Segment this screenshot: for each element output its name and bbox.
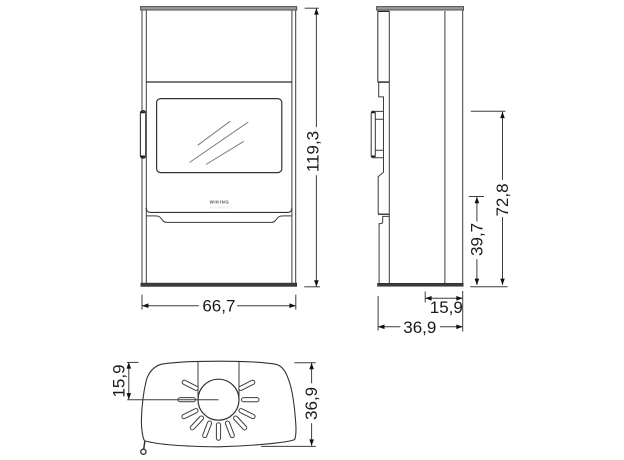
svg-text:15,9: 15,9 (430, 298, 463, 317)
svg-text:36,9: 36,9 (302, 387, 321, 420)
svg-text:39,7: 39,7 (467, 223, 486, 256)
svg-text:AUTOMATIC: AUTOMATIC (209, 205, 230, 209)
svg-text:WIKING: WIKING (210, 200, 230, 205)
svg-text:66,7: 66,7 (202, 297, 235, 316)
svg-text:15,9: 15,9 (109, 364, 128, 397)
svg-text:72,8: 72,8 (493, 183, 512, 216)
svg-text:119,3: 119,3 (304, 131, 323, 172)
svg-text:36,9: 36,9 (403, 318, 436, 337)
